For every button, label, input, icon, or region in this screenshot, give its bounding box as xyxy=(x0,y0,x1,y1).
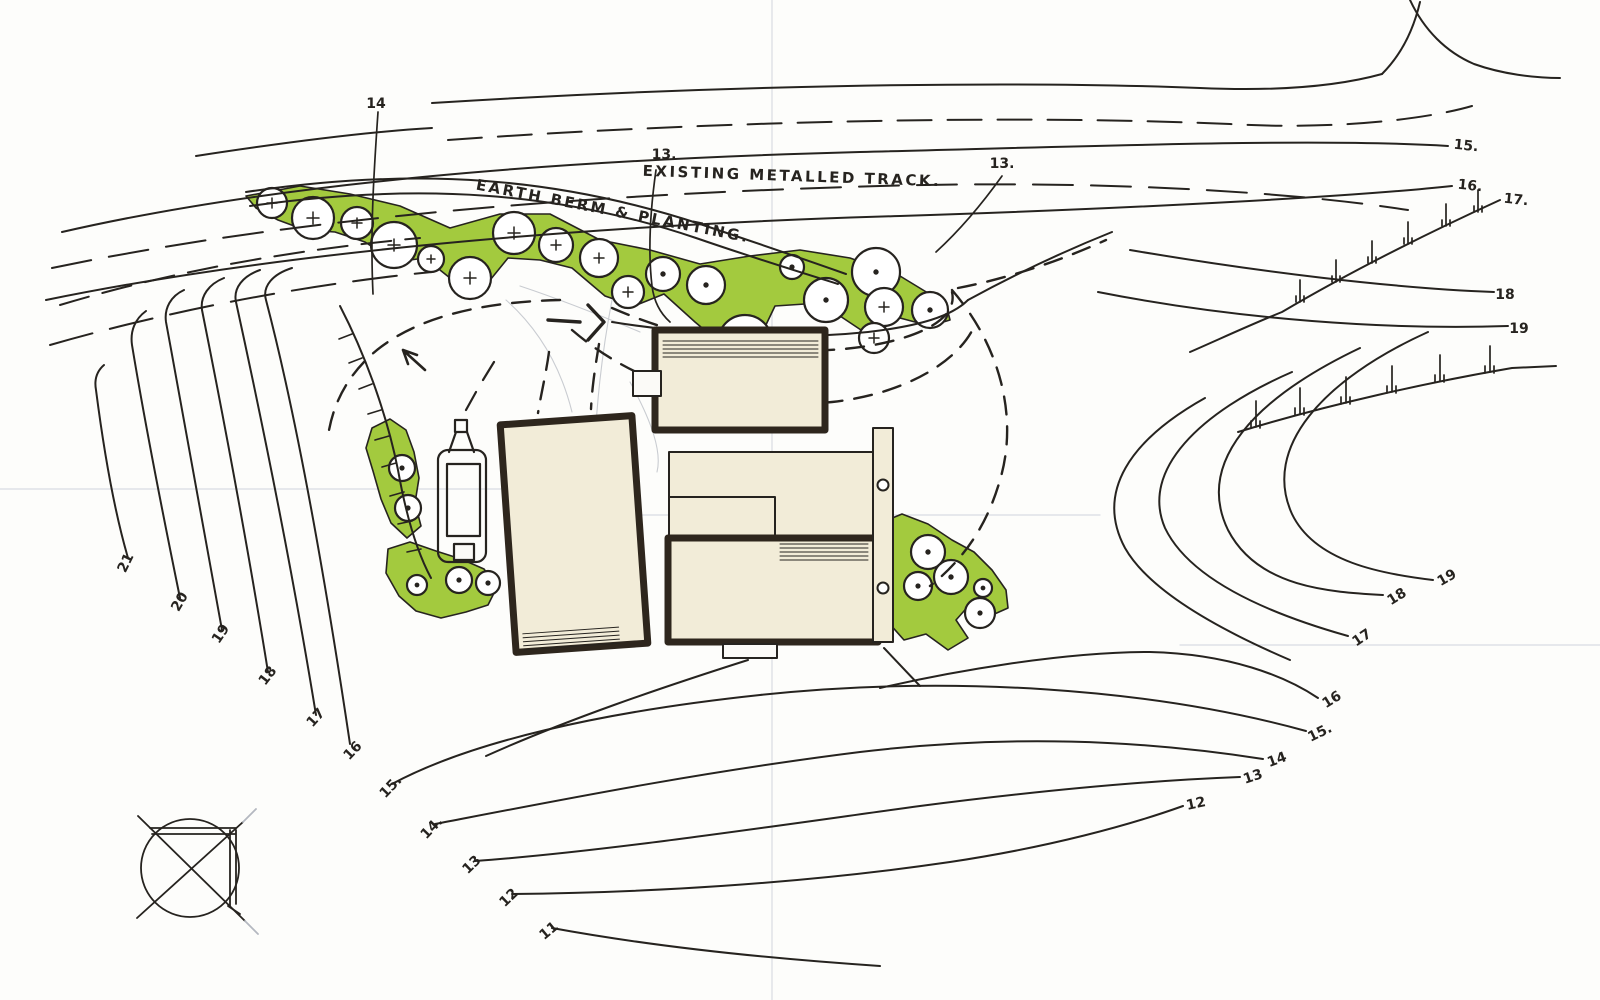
site-plan-drawing xyxy=(0,0,1600,1000)
contour-label: 14 xyxy=(366,96,385,112)
vehicle-trailer xyxy=(438,362,494,562)
north-indicator compass-circle-icon xyxy=(137,809,258,934)
contour-label: 19 xyxy=(1509,321,1528,337)
contour-label: 13. xyxy=(652,147,677,163)
site-plan-canvas: 14 13. 13. EXISTING METALLED TRACK. EART… xyxy=(0,0,1600,1000)
building-link xyxy=(633,371,661,396)
contour-label: 18 xyxy=(1495,287,1514,303)
building-south xyxy=(668,538,878,642)
building-west xyxy=(500,416,648,653)
contour-lines-valley xyxy=(392,648,1318,966)
contour-label: 16. xyxy=(1457,177,1483,196)
arrow-up-left-icon xyxy=(403,350,425,370)
contour-lines-left xyxy=(95,268,350,744)
buildings xyxy=(500,330,893,658)
contour-label: 17. xyxy=(1503,191,1529,210)
contour-lines-right xyxy=(1098,200,1508,660)
contour-label: 15. xyxy=(1453,137,1479,156)
east-wall-strip xyxy=(873,428,893,642)
entry-step xyxy=(723,644,777,658)
contour-label: 13. xyxy=(990,156,1015,172)
fence-lines xyxy=(1238,190,1556,432)
